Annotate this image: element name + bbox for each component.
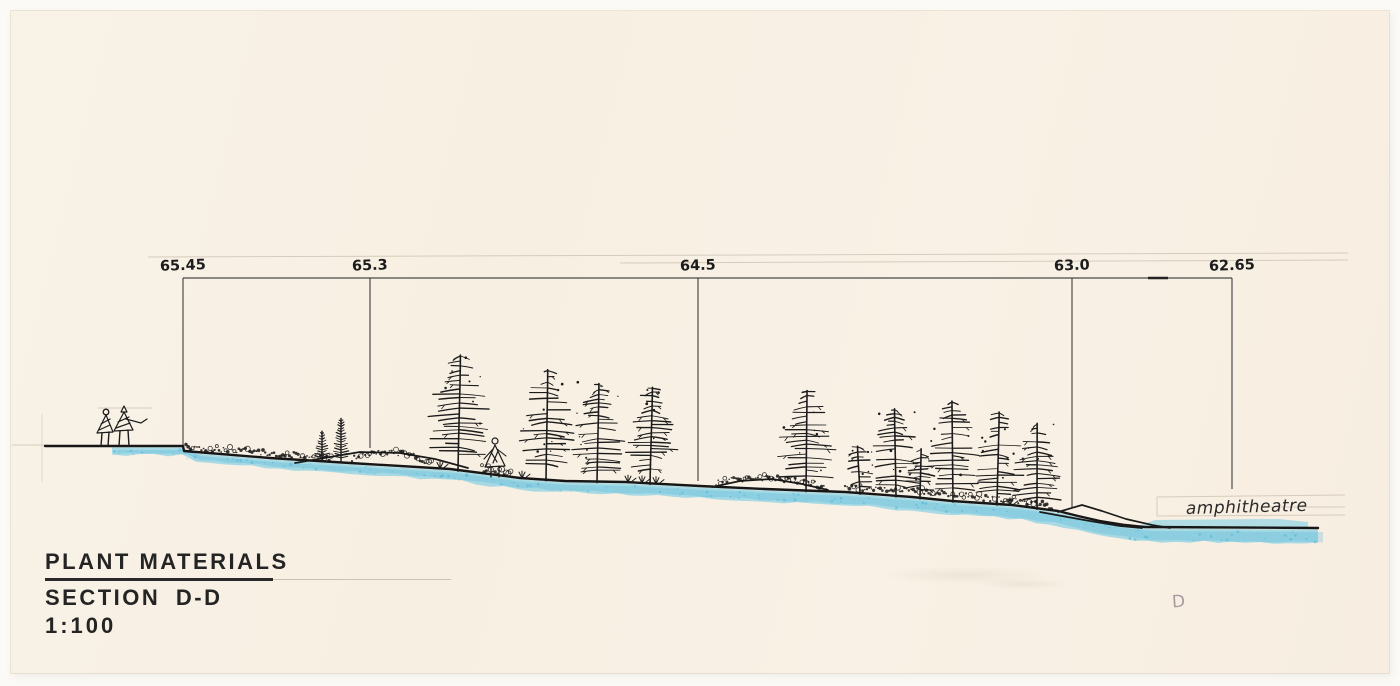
title-underline	[45, 578, 273, 581]
tree-larch	[778, 391, 836, 492]
tree-larch	[626, 387, 678, 484]
elevation-marker: 64.5	[680, 257, 716, 481]
elevation-label: 65.3	[352, 257, 388, 274]
elevation-label: 65.45	[160, 257, 206, 275]
elevation-label: 62.65	[1209, 257, 1255, 275]
section-label: SECTION D-D	[45, 585, 289, 611]
title-block: PLANT MATERIALS SECTION D-D 1:100	[45, 549, 289, 639]
tree-larch	[1014, 423, 1061, 509]
elevation-marker: 62.65	[1209, 257, 1255, 489]
amphitheatre-label: amphitheatre	[1186, 496, 1308, 519]
drawing-layers: 65.4565.364.563.062.65	[12, 253, 1348, 544]
elevation-marker: 65.3	[352, 257, 388, 448]
tree-larch	[572, 381, 625, 483]
tree-larch	[927, 401, 979, 502]
tree-larch	[428, 355, 489, 471]
scanned-drawing-page: 65.4565.364.563.062.65 amphitheatre PLAN…	[0, 0, 1400, 686]
tree-larch	[519, 370, 573, 481]
elevation-label: 64.5	[680, 257, 716, 274]
drawing-title: PLANT MATERIALS	[45, 549, 289, 575]
elevation-marker: 63.0	[1054, 257, 1090, 508]
tree-larch	[873, 409, 920, 497]
elevation-label: 63.0	[1054, 257, 1090, 274]
tree-larch	[976, 412, 1024, 505]
title-underline-extension	[273, 579, 451, 580]
elevation-marker: 65.45	[160, 257, 206, 446]
seated-figures-pair	[97, 406, 147, 446]
water-marker-band	[112, 448, 1323, 544]
scale-label: 1:100	[45, 613, 289, 639]
pencil-sheet-mark: D	[1171, 592, 1185, 613]
